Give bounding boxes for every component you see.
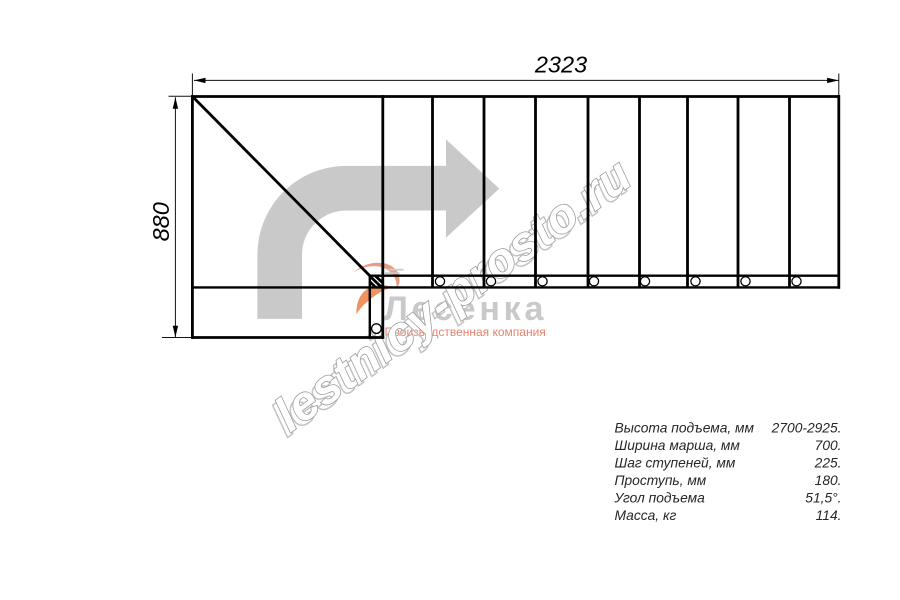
svg-text:Проступь, мм: Проступь, мм (615, 473, 707, 488)
svg-text:Шаг ступеней, мм: Шаг ступеней, мм (615, 455, 736, 470)
svg-text:700.: 700. (815, 438, 842, 453)
svg-text:Угол подъема: Угол подъема (614, 490, 706, 505)
svg-text:51,5°.: 51,5°. (805, 490, 841, 505)
svg-text:2323: 2323 (534, 52, 587, 78)
svg-text:2700-2925.: 2700-2925. (771, 420, 842, 435)
svg-text:Масса, кг: Масса, кг (615, 508, 677, 523)
svg-text:880: 880 (148, 202, 174, 241)
svg-text:Высота подъема, мм: Высота подъема, мм (615, 420, 755, 435)
svg-text:225.: 225. (814, 455, 842, 470)
svg-text:180.: 180. (815, 473, 842, 488)
svg-text:Ширина марша, мм: Ширина марша, мм (615, 438, 741, 453)
svg-text:114.: 114. (816, 508, 842, 523)
